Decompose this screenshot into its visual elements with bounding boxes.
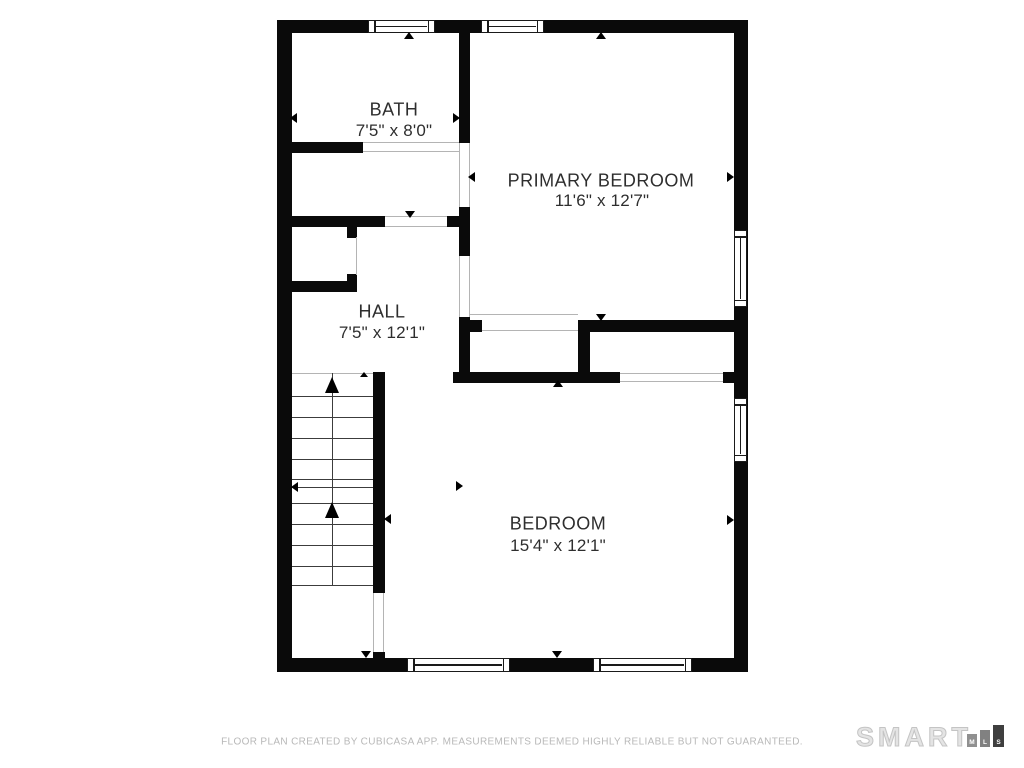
wall-hall-north-a: [292, 216, 385, 227]
mls-bar-m-icon: M: [967, 734, 977, 747]
brand-logo-smart: SMART: [856, 724, 972, 751]
door-marker-icon-bedroom-west: [384, 514, 391, 524]
stair-direction-arrow-icon: [325, 377, 339, 393]
door-marker-icon-bath-divider: [453, 113, 460, 123]
wall-primary-south: [578, 320, 734, 332]
door-marker-icon-right-wall-primary: [727, 172, 734, 182]
threshold-hall-door-top: [385, 216, 447, 217]
door-marker-icon-right-wall-bedroom: [727, 515, 734, 525]
threshold-bath-door-bottom: [363, 151, 459, 152]
mls-letter-m: M: [967, 740, 977, 747]
wall-hall-closet-stub-bottom: [347, 274, 357, 282]
door-marker-icon-primary-south: [596, 314, 606, 321]
wall-bath-primary-divider-1: [459, 33, 470, 143]
door-marker-icon-stairs-separator: [291, 482, 298, 492]
room-name-bedroom: BEDROOM: [510, 514, 607, 535]
mls-letter-s: S: [993, 740, 1004, 747]
door-marker-icon-bedroom-floor: [456, 481, 463, 491]
door-marker-icon-hall-door: [405, 211, 415, 218]
door-marker-icon-bath-left-wall: [290, 113, 297, 123]
mls-bar-l-icon: L: [980, 730, 990, 747]
wall-bedroom-west: [373, 372, 385, 593]
mls-letter-l: L: [980, 740, 990, 747]
threshold-divider-gap2-right: [469, 256, 470, 317]
door-marker-icon-bottom-center: [552, 651, 562, 658]
door-marker-icon-primary-door: [468, 172, 475, 182]
stair-center-line: [332, 373, 333, 586]
threshold-bedroom-closet-bottom: [620, 381, 723, 382]
window-right-2: [734, 398, 747, 462]
room-dims-primary-bedroom: 11'6" x 12'7": [555, 191, 650, 211]
threshold-divider-gap1-left: [459, 143, 460, 207]
threshold-primary-entry: [470, 314, 578, 315]
wall-bedroom-north-stub: [723, 372, 734, 383]
room-dims-bath: 7'5" x 8'0": [356, 121, 433, 141]
stair-direction-arrow-icon: [325, 502, 339, 518]
room-name-primary-bedroom: PRIMARY BEDROOM: [508, 171, 695, 192]
wall-bath-primary-divider-3: [459, 317, 470, 377]
wall-bath-south: [277, 142, 363, 153]
room-dims-hall: 7'5" x 12'1": [339, 323, 425, 343]
wall-primary-south-stub: [470, 320, 482, 332]
room-name-bath: BATH: [370, 100, 419, 121]
footer-disclaimer: FLOOR PLAN CREATED BY CUBICASA APP. MEAS…: [221, 737, 803, 748]
wall-primary-closet-divider: [578, 320, 590, 373]
threshold-bath-door-top: [363, 142, 459, 143]
wall-bedroom-west-stub: [373, 652, 385, 662]
wall-outer-right: [734, 20, 748, 672]
window-bottom-2: [593, 658, 692, 672]
wall-bath-primary-divider-2: [459, 207, 470, 256]
door-marker-icon-top-window: [404, 32, 414, 39]
room-name-hall: HALL: [358, 302, 405, 323]
threshold-bedroom-closet-top: [620, 373, 723, 374]
door-marker-icon-bottom-left: [361, 651, 371, 658]
door-marker-icon-stairs-top: [360, 372, 368, 377]
threshold-primary-closet: [482, 330, 578, 331]
door-marker-icon-closet-north: [553, 380, 563, 387]
threshold-bedroom-door-left: [373, 593, 374, 652]
room-dims-bedroom: 15'4" x 12'1": [510, 536, 606, 556]
window-right-1: [734, 230, 747, 307]
wall-bedroom-north: [453, 372, 620, 383]
window-top-2: [481, 20, 544, 33]
mls-bar-s-icon: S: [993, 725, 1004, 747]
door-marker-icon-top-right: [596, 32, 606, 39]
floor-plan-canvas: BATH 7'5" x 8'0" PRIMARY BEDROOM 11'6" x…: [0, 0, 1024, 768]
wall-hall-north-b: [447, 216, 470, 227]
threshold-hall-closet: [356, 237, 357, 275]
window-top-1: [368, 20, 435, 33]
window-bottom-1: [407, 658, 510, 672]
threshold-hall-door-bottom: [385, 226, 447, 227]
threshold-bedroom-door-right: [383, 593, 384, 652]
threshold-divider-gap2-left: [459, 256, 460, 317]
wall-hall-closet-south: [292, 281, 357, 292]
